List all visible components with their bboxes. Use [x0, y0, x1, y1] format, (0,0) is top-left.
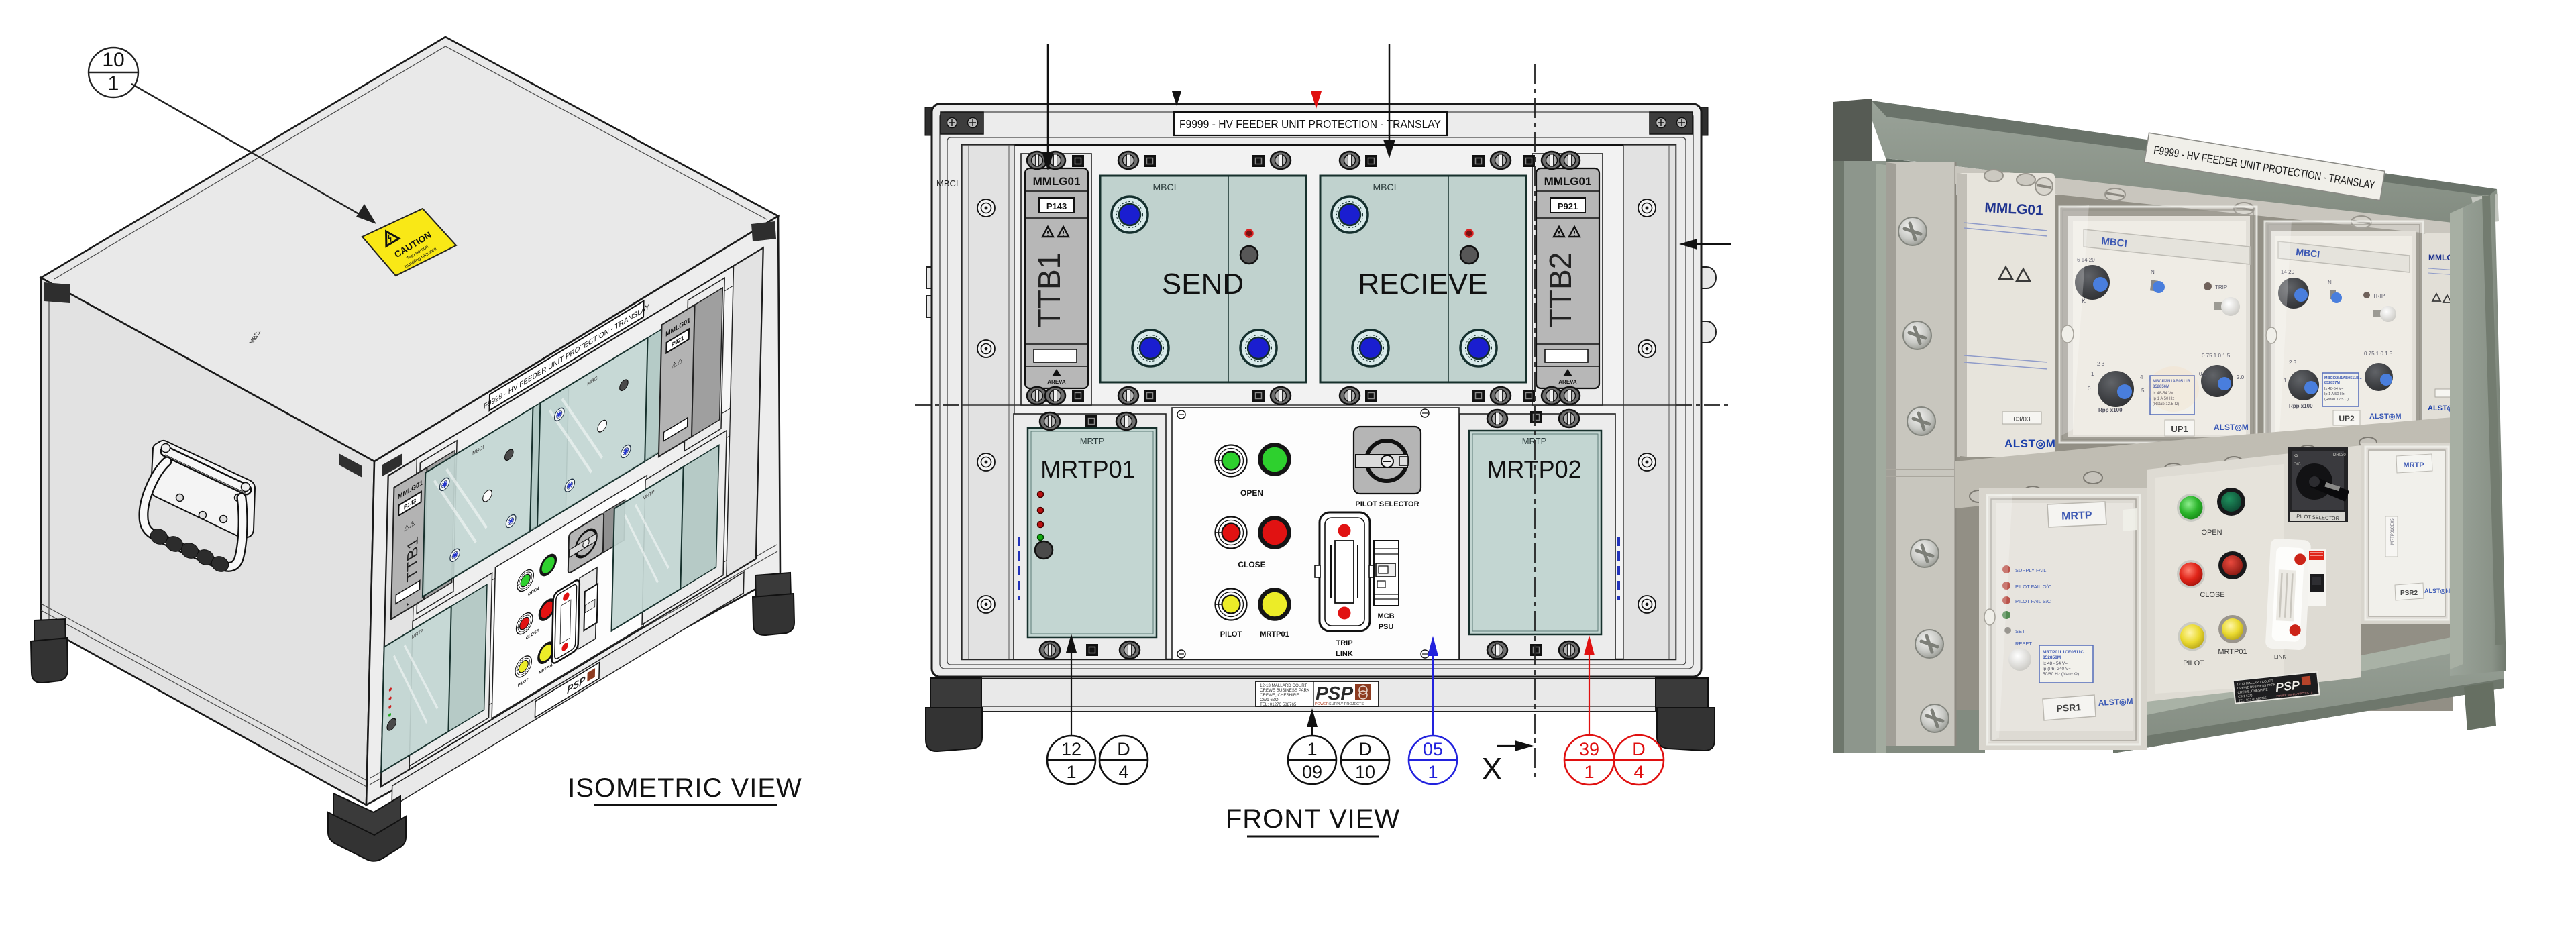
svg-text:X: X: [1482, 751, 1503, 786]
svg-text:10: 10: [102, 49, 124, 71]
svg-text:MBCI: MBCI: [936, 178, 959, 188]
svg-text:MMLG01: MMLG01: [1033, 175, 1081, 188]
svg-text:4: 4: [1633, 762, 1644, 782]
svg-text:PILOT: PILOT: [1220, 630, 1242, 639]
svg-text:1: 1: [1307, 739, 1317, 759]
svg-text:CREWE, CHESHIRE: CREWE, CHESHIRE: [1260, 693, 1299, 698]
svg-text:05: 05: [1423, 739, 1443, 759]
svg-text:MRTP01: MRTP01: [1260, 630, 1289, 639]
svg-text:09: 09: [1302, 762, 1322, 782]
svg-text:OPEN: OPEN: [2201, 529, 2222, 537]
svg-text:Φ: Φ: [2294, 454, 2298, 459]
svg-text:P143: P143: [1046, 201, 1067, 211]
svg-text:TEL: 01270 588765: TEL: 01270 588765: [1260, 702, 1297, 707]
svg-text:03/03: 03/03: [2013, 416, 2030, 423]
svg-text:F9999 - HV FEEDER UNIT PROTECT: F9999 - HV FEEDER UNIT PROTECTION - TRAN…: [1179, 117, 1441, 131]
svg-text:SUPPLY PROJECTS: SUPPLY PROJECTS: [1329, 702, 1364, 706]
svg-text:TTB1: TTB1: [1032, 252, 1067, 327]
svg-text:MBCI: MBCI: [1153, 182, 1177, 192]
svg-text:TTB2: TTB2: [1543, 252, 1578, 327]
svg-text:FRONT VIEW: FRONT VIEW: [1226, 804, 1400, 834]
svg-text:CREWE BUSINESS PARK: CREWE BUSINESS PARK: [1260, 688, 1310, 693]
svg-text:PSP: PSP: [1316, 683, 1353, 704]
svg-text:MMLG01: MMLG01: [1544, 175, 1592, 188]
svg-text:PSU: PSU: [1379, 623, 1394, 631]
svg-text:SEND: SEND: [1162, 268, 1244, 300]
svg-text:1: 1: [1428, 762, 1438, 782]
svg-text:MRTP: MRTP: [1080, 436, 1105, 446]
svg-text:MMLG01: MMLG01: [1984, 200, 2044, 219]
svg-text:1: 1: [1066, 762, 1076, 782]
svg-text:CW1 6ZQ: CW1 6ZQ: [1260, 698, 1279, 702]
svg-text:PILOT SELECTOR: PILOT SELECTOR: [1355, 500, 1419, 508]
svg-text:O/C: O/C: [2294, 463, 2301, 467]
svg-text:ISOMETRIC VIEW: ISOMETRIC VIEW: [568, 773, 802, 803]
svg-text:AREVA: AREVA: [1047, 379, 1066, 385]
svg-text:39: 39: [1579, 739, 1599, 759]
svg-text:4: 4: [1118, 762, 1128, 782]
svg-text:1: 1: [108, 72, 119, 95]
svg-text:D: D: [1632, 739, 1646, 759]
svg-text:POWER: POWER: [1315, 702, 1329, 706]
svg-text:1: 1: [1584, 762, 1594, 782]
svg-text:PILOT: PILOT: [2183, 659, 2204, 667]
svg-text:MRTP01: MRTP01: [1040, 455, 1135, 483]
svg-text:DR030: DR030: [2333, 453, 2346, 457]
svg-text:TRIP: TRIP: [1336, 639, 1352, 647]
svg-text:MRTP01: MRTP01: [2218, 648, 2247, 656]
svg-text:D: D: [1117, 739, 1130, 759]
svg-text:P921: P921: [1558, 201, 1578, 211]
svg-text:12: 12: [1061, 739, 1081, 759]
svg-text:ALST◎M: ALST◎M: [2004, 437, 2055, 450]
svg-text:12-13 MALLARD COURT: 12-13 MALLARD COURT: [1260, 683, 1307, 688]
svg-text:10: 10: [1355, 762, 1375, 782]
svg-text:MRTP02: MRTP02: [1487, 455, 1581, 483]
svg-text:CLOSE: CLOSE: [1238, 560, 1265, 569]
svg-text:MCB: MCB: [1377, 612, 1394, 620]
svg-text:LINK: LINK: [2274, 654, 2286, 660]
svg-text:MBCI: MBCI: [1373, 182, 1397, 192]
svg-text:LINK: LINK: [1336, 650, 1353, 658]
svg-text:D: D: [1358, 739, 1372, 759]
svg-text:CLOSE: CLOSE: [2200, 591, 2224, 599]
svg-text:AREVA: AREVA: [1558, 379, 1577, 385]
svg-text:OPEN: OPEN: [1240, 488, 1263, 498]
svg-text:RECIEVE: RECIEVE: [1358, 268, 1487, 300]
svg-text:MRTP: MRTP: [1522, 436, 1547, 446]
